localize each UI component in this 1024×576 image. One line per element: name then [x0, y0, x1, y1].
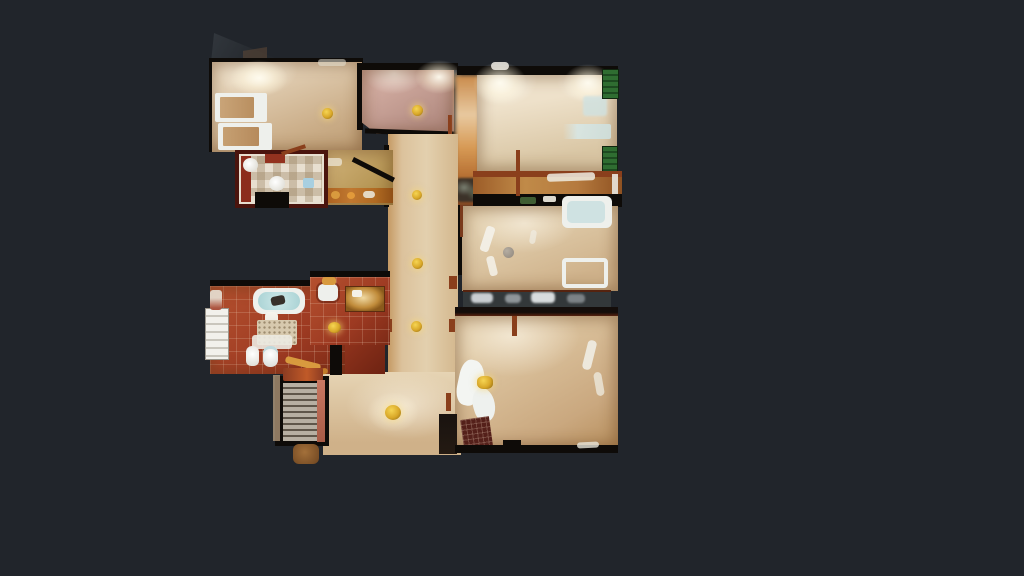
wall-lamp-mark: [491, 62, 509, 70]
bedroom-top-right-floor: [477, 75, 617, 171]
bottom-white-mark: [577, 441, 599, 448]
ceiling-light-hall-3: [411, 321, 422, 332]
stair-bottom-landing: [293, 444, 319, 464]
bathroom-sink: [318, 284, 338, 301]
scan-viewport[interactable]: [0, 0, 1024, 576]
blue-patch-2: [563, 124, 611, 139]
stair-side-sliver: [273, 375, 280, 441]
side-table-round: [503, 247, 514, 258]
wall-left-bedroom1: [209, 62, 212, 152]
small-bathroom-door-notch: [255, 192, 289, 208]
jamb-hall-bottom: [446, 393, 451, 411]
balcony-green-bits: [520, 197, 536, 204]
chandelier: [385, 405, 401, 420]
sofa-2-frame: [562, 258, 608, 288]
gold-object-bedroom3: [477, 376, 493, 389]
jamb-hall-right-1: [449, 276, 457, 289]
bidet: [263, 346, 278, 367]
sofa-1-cushions: [567, 201, 605, 223]
sink-round-2: [269, 176, 285, 191]
bed-2-mattress: [223, 127, 259, 146]
wall-bedroom3-top: [455, 307, 618, 316]
stair-banister: [317, 380, 325, 442]
glass-blob-1: [471, 293, 493, 303]
bedroom-mauve-floor: [362, 70, 454, 134]
toilet: [246, 346, 259, 366]
ceiling-light-bedroom1: [322, 108, 333, 119]
floorplan: [205, 30, 620, 460]
stair-treads: [283, 383, 317, 441]
sink-bottles: [322, 277, 336, 285]
blue-item-small-bath: [303, 178, 314, 188]
kitchen-dish: [363, 191, 375, 198]
master-bath-door-gap: [330, 345, 342, 375]
wall-divider-mauve: [357, 63, 458, 70]
kitchen-produce-1: [331, 191, 340, 199]
ceiling-light-hall-1: [412, 190, 422, 200]
master-bath-floor-right-low: [345, 345, 385, 374]
grid-mat-bedroom3: [460, 416, 493, 449]
glass-blob-2: [505, 294, 521, 303]
wall-marks-bedroom1: [318, 59, 346, 66]
sink-round-1: [243, 158, 258, 172]
towel-marks-left: [210, 290, 222, 310]
bed-1-mattress: [220, 97, 254, 118]
hallway-floor: [388, 134, 458, 406]
green-shutter-1: [602, 69, 619, 99]
ceiling-light-hall-2: [412, 258, 423, 269]
glass-blob-3: [531, 292, 555, 303]
jamb-bedroom3: [512, 316, 517, 336]
balcony-white-streak: [547, 172, 595, 182]
vanity-white-items: [352, 290, 362, 297]
balcony-white-bit: [543, 196, 556, 202]
shelf-cabinet: [205, 308, 229, 360]
green-shutter-2: [602, 146, 618, 173]
blue-patch-1: [583, 96, 607, 116]
ceiling-light-mauve: [412, 105, 423, 116]
kitchen-white-bits: [326, 158, 342, 166]
door-jamb-balcony: [516, 150, 520, 196]
bedroom3-bottom-notch: [503, 440, 521, 449]
gold-floor-object: [328, 322, 341, 333]
glass-blob-4: [567, 294, 585, 303]
kitchen-produce-2: [347, 192, 355, 199]
wall-top-right: [457, 66, 618, 75]
vanity-gold-lit: [345, 286, 385, 312]
